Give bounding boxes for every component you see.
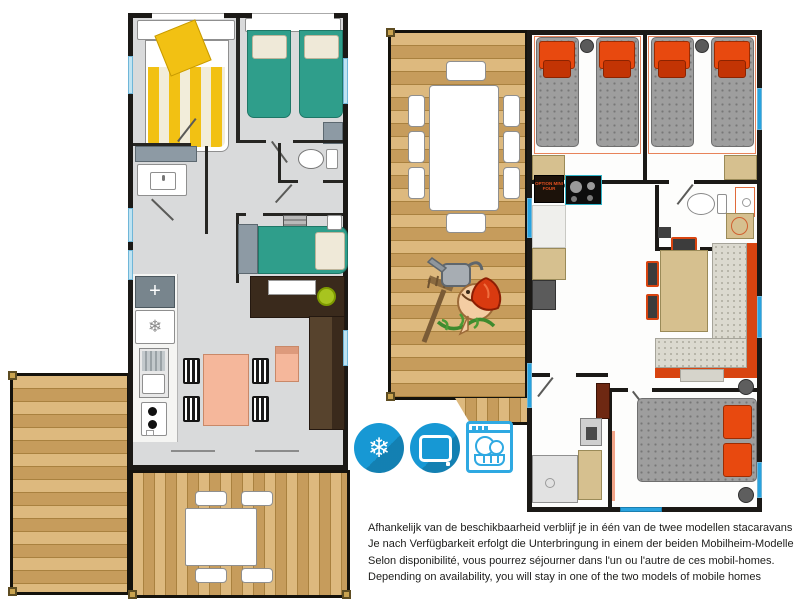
window — [252, 13, 334, 19]
pillow-red — [603, 60, 631, 78]
deck-table — [429, 85, 499, 211]
dining-table — [203, 354, 249, 426]
oven-knob — [146, 430, 154, 436]
pillow-orange — [723, 405, 752, 439]
burner — [570, 181, 582, 193]
single-bed — [651, 37, 694, 147]
dishwasher-button — [472, 426, 476, 430]
window — [343, 58, 348, 104]
striped-duvet — [148, 67, 225, 147]
wc-bin — [658, 227, 671, 238]
wall — [576, 373, 608, 377]
sliding-door-mark — [171, 450, 215, 452]
armchair-back — [276, 347, 298, 354]
single-bed-green-3 — [258, 226, 348, 274]
terrace-chair — [195, 568, 227, 583]
bottom-terrace — [130, 470, 350, 598]
caption-line-en: Depending on availability, you will stay… — [368, 569, 798, 585]
terrace-post — [8, 587, 17, 596]
tv-screen — [419, 435, 452, 462]
window — [527, 198, 532, 238]
wall — [278, 180, 298, 183]
desk-brown — [250, 276, 345, 318]
stool-green — [317, 287, 336, 306]
wall — [694, 180, 757, 184]
floor-plans-canvas: + ❄ — [0, 0, 800, 614]
caption-line-fr: Selon disponibilité, vous pourrez séjour… — [368, 553, 798, 569]
burner — [148, 407, 157, 416]
dishwasher-button — [484, 426, 488, 430]
window — [128, 208, 133, 242]
wall — [532, 373, 550, 377]
window — [620, 507, 662, 512]
wall — [236, 18, 240, 143]
amenities-row: ❄ — [354, 421, 519, 476]
bedside-table — [738, 379, 754, 395]
side-terrace — [10, 373, 130, 595]
dining-table — [660, 250, 708, 332]
faucet-dot — [162, 175, 165, 181]
wall — [293, 140, 343, 143]
wall — [236, 140, 266, 143]
dishwasher-basket — [474, 454, 505, 466]
kitchen-counter-tan — [532, 248, 566, 280]
deck-chair — [503, 167, 520, 199]
wall — [643, 35, 647, 180]
bathroom-cabinet — [578, 450, 602, 500]
deck-post — [386, 392, 395, 401]
wall — [655, 185, 659, 249]
dining-chair-red — [646, 261, 659, 287]
armchair — [275, 346, 299, 382]
kitchen-appliance — [532, 280, 556, 310]
sink-drainer — [142, 351, 165, 371]
fridge-snowflake-icon: ❄ — [148, 317, 162, 336]
deck-chair — [446, 213, 486, 233]
bathroom-sink — [580, 418, 602, 446]
bed-cabinet — [238, 224, 258, 274]
wall — [205, 146, 208, 234]
terrace-chair — [241, 568, 273, 583]
gas-hob — [565, 175, 602, 205]
bed-pillow — [315, 232, 345, 270]
snowflake-icon: ❄ — [354, 423, 404, 473]
window — [757, 88, 762, 130]
sofa-cushion — [655, 338, 747, 368]
burner — [148, 420, 157, 429]
deck-chair — [503, 95, 520, 127]
window — [757, 296, 762, 338]
pillow-red — [658, 60, 686, 78]
sink-faucet — [586, 427, 597, 440]
hob-cross: + — [149, 280, 161, 302]
gardener-mascot-illustration — [398, 250, 510, 348]
window — [757, 462, 762, 498]
bed-pillow — [304, 35, 339, 59]
wall-lamp — [580, 39, 594, 53]
terrace-chair — [241, 491, 273, 506]
kitchen-counter — [532, 205, 566, 248]
mobile-home-1-building: + ❄ — [128, 13, 348, 470]
dining-chair — [183, 396, 200, 422]
toilet — [298, 149, 324, 169]
pillow-orange — [723, 443, 752, 477]
terrace-table — [185, 508, 257, 566]
single-bed — [536, 37, 579, 147]
dishwasher-button — [478, 426, 482, 430]
door-swing — [151, 199, 174, 221]
caption-line-de: Je nach Verfügbarkeit erfolgt die Unterb… — [368, 536, 798, 552]
mini-oven-option-box: OPTION MINI FOUR — [534, 175, 564, 203]
single-bed — [711, 37, 754, 147]
deck-chair — [408, 167, 425, 199]
dishwasher-plate — [489, 440, 504, 455]
option-mini-four-label: OPTION MINI FOUR — [535, 176, 563, 192]
plan-model-1: + ❄ — [0, 0, 360, 614]
deck-chair — [503, 131, 520, 163]
sofa-frame — [747, 243, 757, 378]
deck-chair — [408, 131, 425, 163]
deck-chair — [408, 95, 425, 127]
single-bed-green — [299, 30, 343, 118]
terrace-chair — [195, 491, 227, 506]
kitchen-sink — [139, 348, 169, 398]
single-bed-green — [247, 30, 291, 118]
window — [152, 13, 224, 19]
pillow-red — [718, 60, 746, 78]
wall — [278, 143, 281, 183]
caption-line-nl: Afhankelijk van de beschikbaarheid verbl… — [368, 520, 798, 536]
tv-button — [446, 462, 450, 466]
stove — [141, 402, 167, 436]
mobile-home-2-building: OPTION MINI FOUR — [527, 30, 762, 512]
window — [343, 330, 348, 366]
dining-chair-red — [646, 294, 659, 320]
sofa-brown — [309, 316, 345, 430]
sliding-door-mark — [255, 450, 299, 452]
door-frame-strip — [612, 431, 615, 501]
double-bed-master — [637, 398, 757, 482]
wardrobe — [724, 155, 757, 180]
window — [128, 250, 133, 280]
door-swing — [275, 184, 293, 203]
snowflake-glyph: ❄ — [368, 435, 391, 462]
terrace-post — [128, 590, 137, 599]
hob: + — [135, 276, 175, 308]
sliding-door — [527, 363, 532, 408]
washbasin-cabinet — [726, 213, 754, 239]
dining-chair — [252, 396, 269, 422]
basin-dot — [742, 198, 751, 207]
shower-drain — [545, 478, 555, 488]
shower — [532, 455, 578, 503]
bed-pillow — [252, 35, 287, 59]
basket-tick — [497, 456, 499, 463]
window-box — [327, 215, 342, 230]
toilet — [687, 193, 715, 215]
deck-chair — [446, 61, 486, 81]
fridge: ❄ — [135, 310, 175, 344]
dining-chair — [183, 358, 200, 384]
availability-caption: Afhankelijk van de beschikbaarheid verbl… — [368, 520, 798, 586]
basket-tick — [483, 456, 485, 463]
bathroom-sink-counter — [137, 164, 187, 196]
basin-circle — [731, 217, 748, 235]
window — [128, 56, 133, 94]
toilet-tank — [326, 149, 338, 169]
toilet-tank — [717, 194, 727, 214]
basket-tick — [490, 456, 492, 463]
terrace-post — [8, 371, 17, 380]
single-bed — [596, 37, 639, 147]
wardrobe — [135, 146, 197, 162]
door-swing — [537, 377, 553, 397]
burner — [571, 196, 577, 202]
deck-post — [386, 28, 395, 37]
dishwasher-panel — [469, 424, 510, 433]
pillow-red — [543, 60, 571, 78]
desk-paper — [268, 280, 316, 295]
burner — [587, 195, 593, 201]
bedside-table — [738, 487, 754, 503]
dining-chair — [252, 358, 269, 384]
terrace-post — [342, 590, 351, 599]
wall-lamp — [695, 39, 709, 53]
sofa-footrest — [680, 369, 724, 382]
dishwasher-icon — [466, 421, 513, 473]
tv-icon — [410, 423, 460, 473]
sink-basin — [142, 374, 165, 394]
burner — [587, 182, 595, 190]
wall — [323, 180, 343, 183]
water-heater-cabinet — [596, 383, 610, 419]
